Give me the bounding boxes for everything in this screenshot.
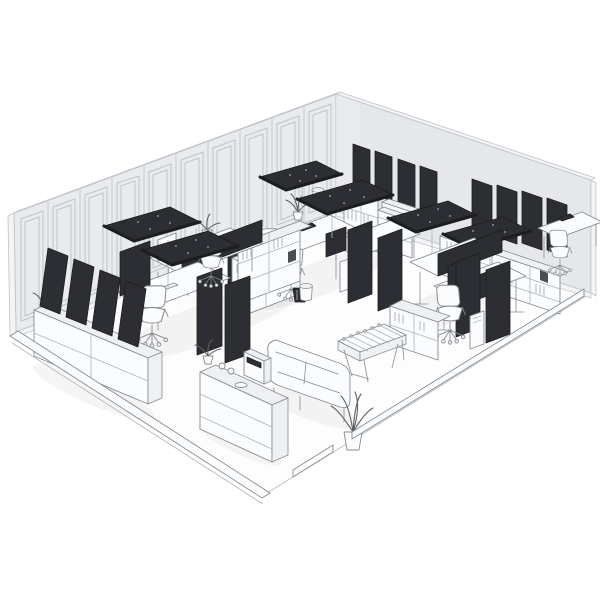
acoustic-wall-panel	[522, 191, 542, 250]
office-isometric-illustration	[0, 0, 600, 600]
office-render-stage	[0, 0, 600, 600]
wall-outer-edge	[591, 180, 596, 296]
freestanding-partition	[225, 276, 250, 363]
waste-bin	[300, 283, 313, 300]
freestanding-partition	[348, 221, 372, 303]
freestanding-partition	[486, 261, 510, 343]
acoustic-wall-panel	[398, 159, 415, 209]
freestanding-partition	[378, 229, 402, 311]
pc-tower	[470, 311, 484, 349]
plate	[235, 383, 247, 388]
